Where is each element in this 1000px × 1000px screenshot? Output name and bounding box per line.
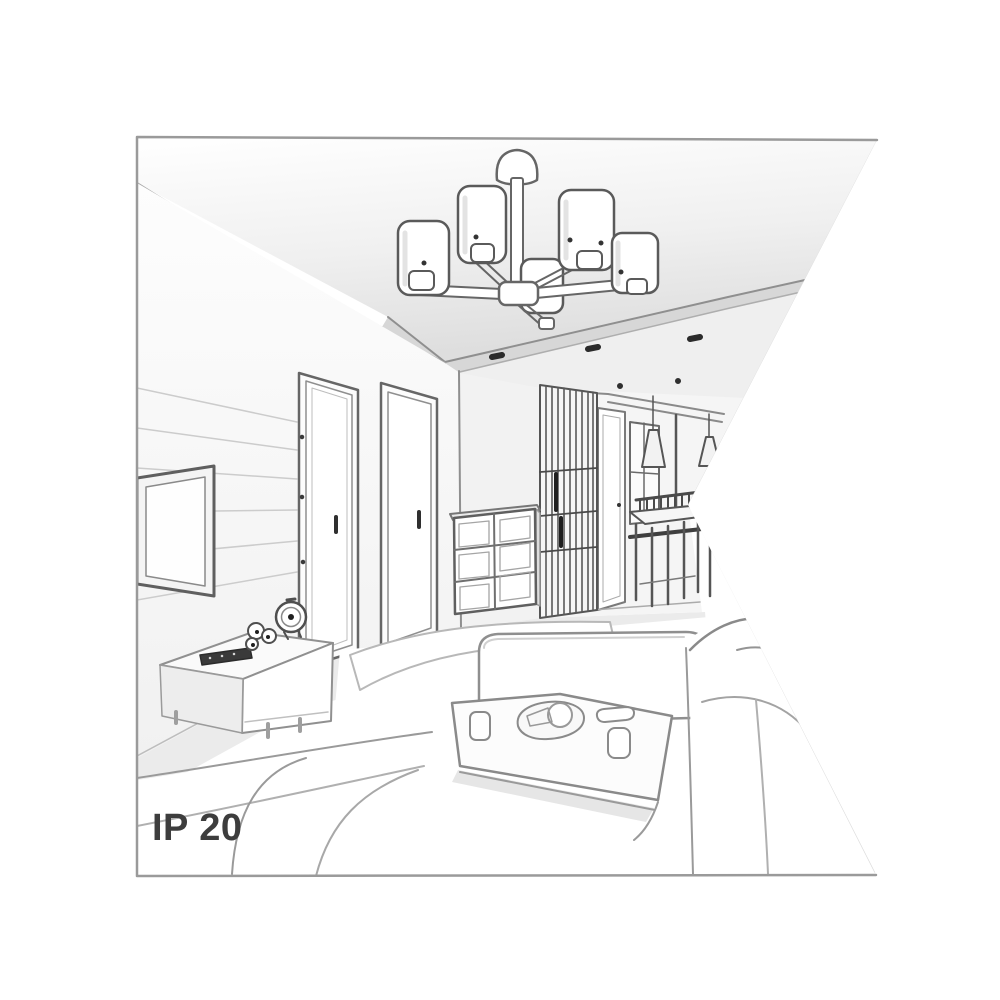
ip-rating-label: IP 20 [152, 807, 243, 849]
tv-screen [146, 477, 205, 586]
room-illustration: IP 20 [0, 0, 1000, 1000]
cup-2 [608, 728, 630, 758]
hallway-door [598, 408, 625, 610]
dresser [450, 505, 540, 614]
wardrobe [540, 385, 597, 618]
tv [137, 466, 214, 596]
cup-1 [470, 712, 490, 740]
product-image-canvas: IP 20 [0, 0, 1000, 1000]
chandelier-hub [499, 282, 538, 305]
dish [597, 707, 634, 722]
clipped-scene [130, 130, 890, 886]
